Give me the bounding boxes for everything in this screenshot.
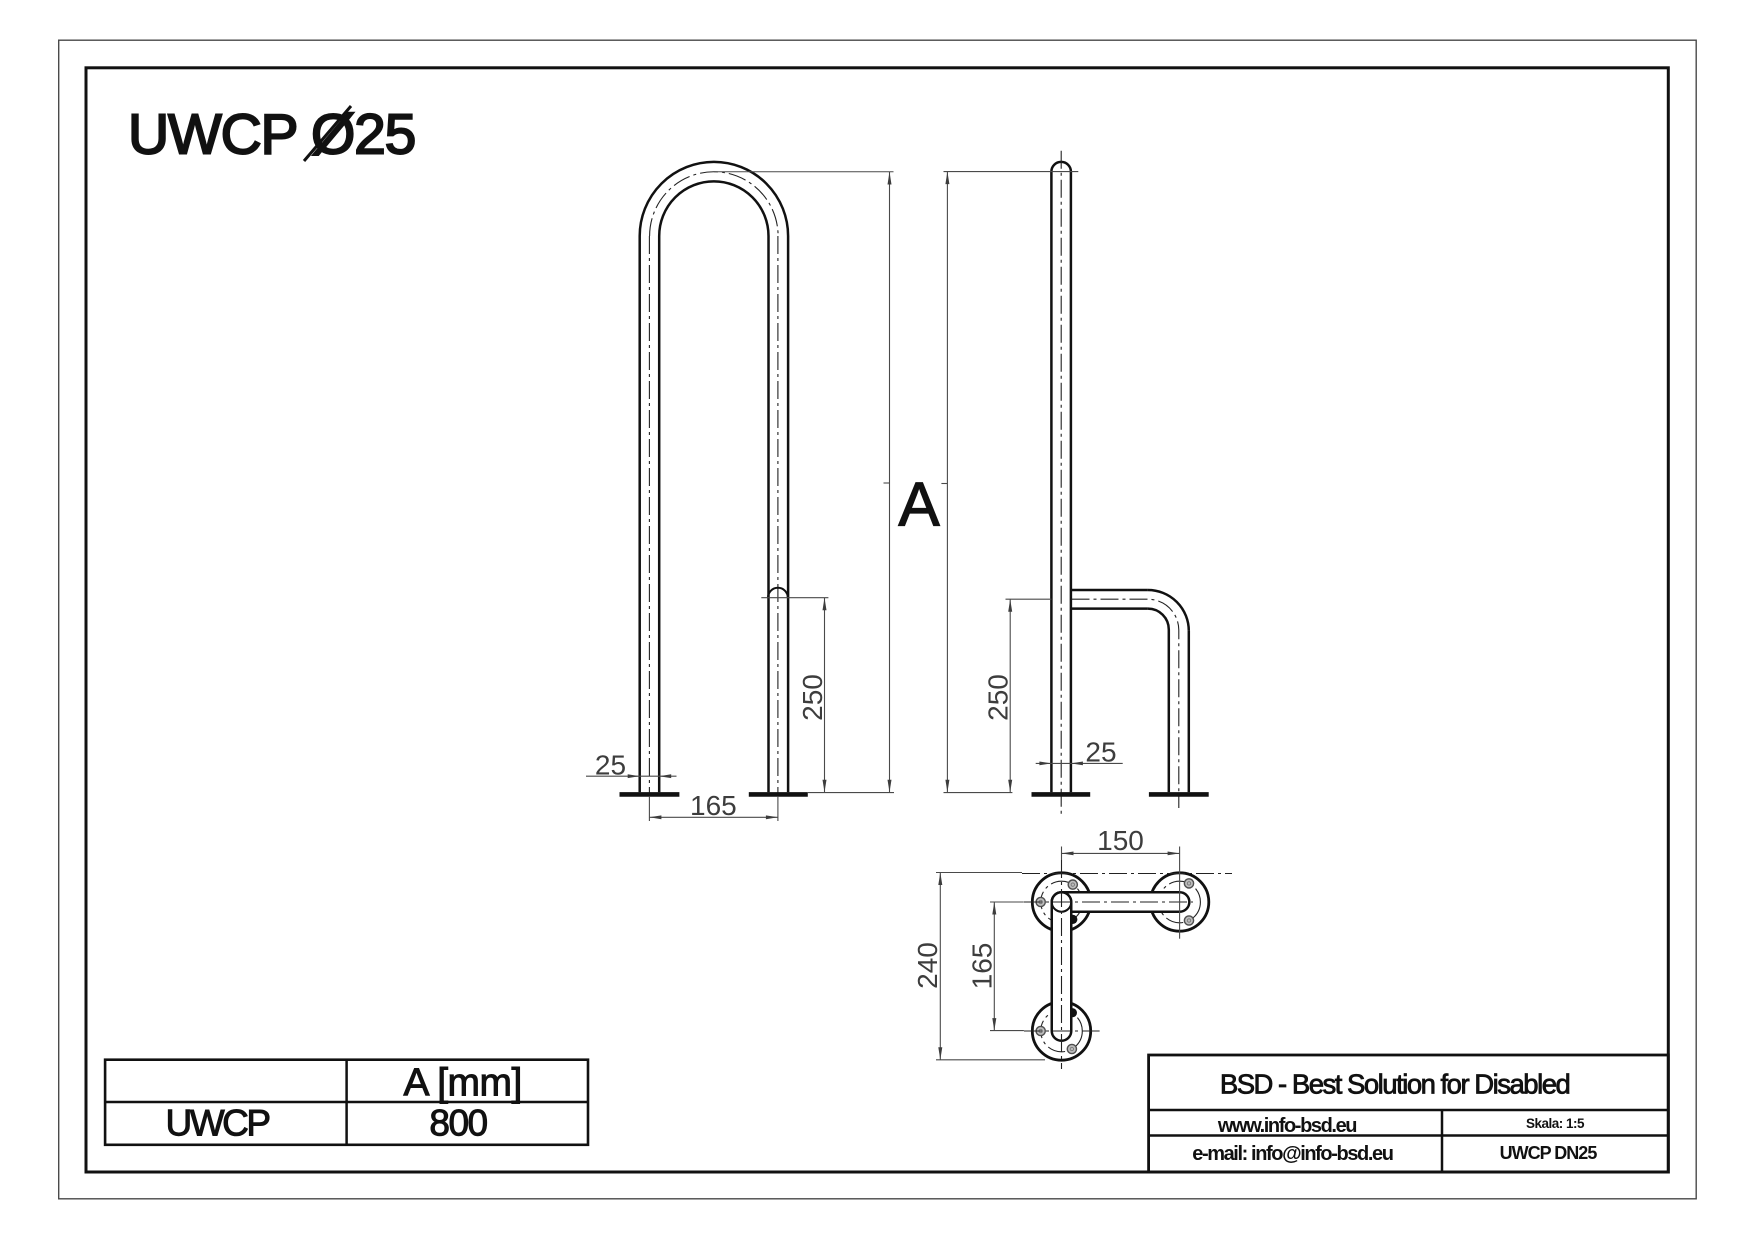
svg-text:250: 250 [797,674,828,721]
svg-text:A: A [898,471,940,540]
svg-text:250: 250 [983,674,1014,721]
svg-text:UWCP Ø25: UWCP Ø25 [128,103,415,167]
svg-text:UWCP DN25: UWCP DN25 [1500,1143,1598,1163]
svg-text:e-mail: info@info-bsd.eu: e-mail: info@info-bsd.eu [1192,1143,1393,1165]
svg-text:150: 150 [1097,825,1144,856]
svg-text:25: 25 [1085,737,1116,768]
svg-text:UWCP: UWCP [165,1103,269,1144]
svg-text:Skala: 1:5: Skala: 1:5 [1526,1116,1585,1131]
svg-text:165: 165 [966,943,997,990]
svg-text:www.info-bsd.eu: www.info-bsd.eu [1217,1115,1356,1137]
svg-text:240: 240 [912,942,943,989]
svg-text:BSD - Best Solution for Disabl: BSD - Best Solution for Disabled [1220,1069,1570,1100]
svg-text:165: 165 [690,790,737,821]
svg-text:25: 25 [595,750,626,781]
svg-text:800: 800 [429,1103,487,1144]
svg-text:A [mm]: A [mm] [404,1062,522,1105]
